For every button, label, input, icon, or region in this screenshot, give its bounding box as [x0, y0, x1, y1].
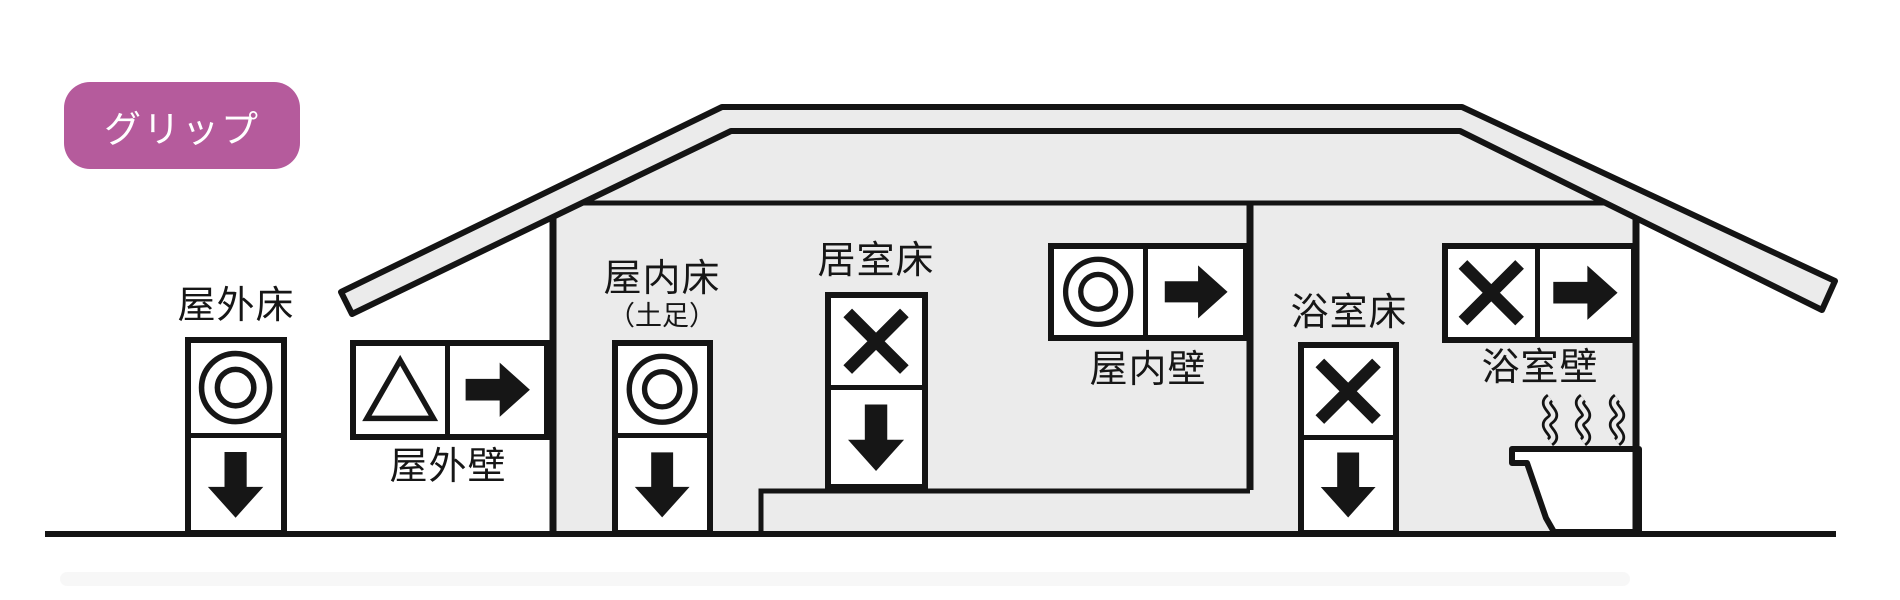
- double-circle-icon: [1054, 249, 1148, 335]
- down-arrow-icon: [618, 438, 707, 530]
- sign-sublabel-indoor-floor: （土足）: [608, 303, 716, 330]
- usage-diagram: グリップ 屋外床 屋外壁 屋内床 （土足） 居室床: [0, 0, 1900, 600]
- sign-living-room-floor: [825, 292, 928, 490]
- sign-outdoor-floor: [185, 337, 287, 536]
- down-arrow-icon: [831, 390, 922, 484]
- ground-shadow: [60, 572, 1630, 586]
- sign-label-indoor-floor: 屋内床: [603, 260, 720, 300]
- triangle-icon: [356, 346, 450, 434]
- right-arrow-icon: [1540, 249, 1631, 337]
- down-arrow-icon: [1304, 440, 1393, 530]
- sign-outdoor-wall: [350, 340, 550, 440]
- cross-icon: [1304, 348, 1393, 440]
- sign-indoor-wall: [1048, 243, 1249, 341]
- sign-label-indoor-wall: 屋内壁: [1089, 351, 1206, 391]
- sign-indoor-floor: [612, 340, 713, 536]
- double-circle-icon: [618, 346, 707, 438]
- sign-bathroom-wall: [1442, 243, 1637, 343]
- cross-icon: [831, 298, 922, 390]
- sign-label-outdoor-floor: 屋外床: [177, 287, 294, 327]
- sign-label-bathroom-wall: 浴室壁: [1481, 349, 1598, 389]
- sign-bathroom-floor: [1298, 342, 1399, 536]
- right-arrow-icon: [450, 346, 544, 434]
- right-arrow-icon: [1148, 249, 1243, 335]
- sign-label-bathroom-floor: 浴室床: [1290, 294, 1407, 334]
- grip-badge-label: グリップ: [104, 99, 260, 153]
- double-circle-icon: [191, 343, 281, 438]
- sign-label-living-room-floor: 居室床: [817, 242, 934, 282]
- cross-icon: [1448, 249, 1540, 337]
- grip-badge: グリップ: [64, 82, 300, 169]
- sign-label-outdoor-wall: 屋外壁: [389, 448, 506, 488]
- down-arrow-icon: [191, 438, 281, 530]
